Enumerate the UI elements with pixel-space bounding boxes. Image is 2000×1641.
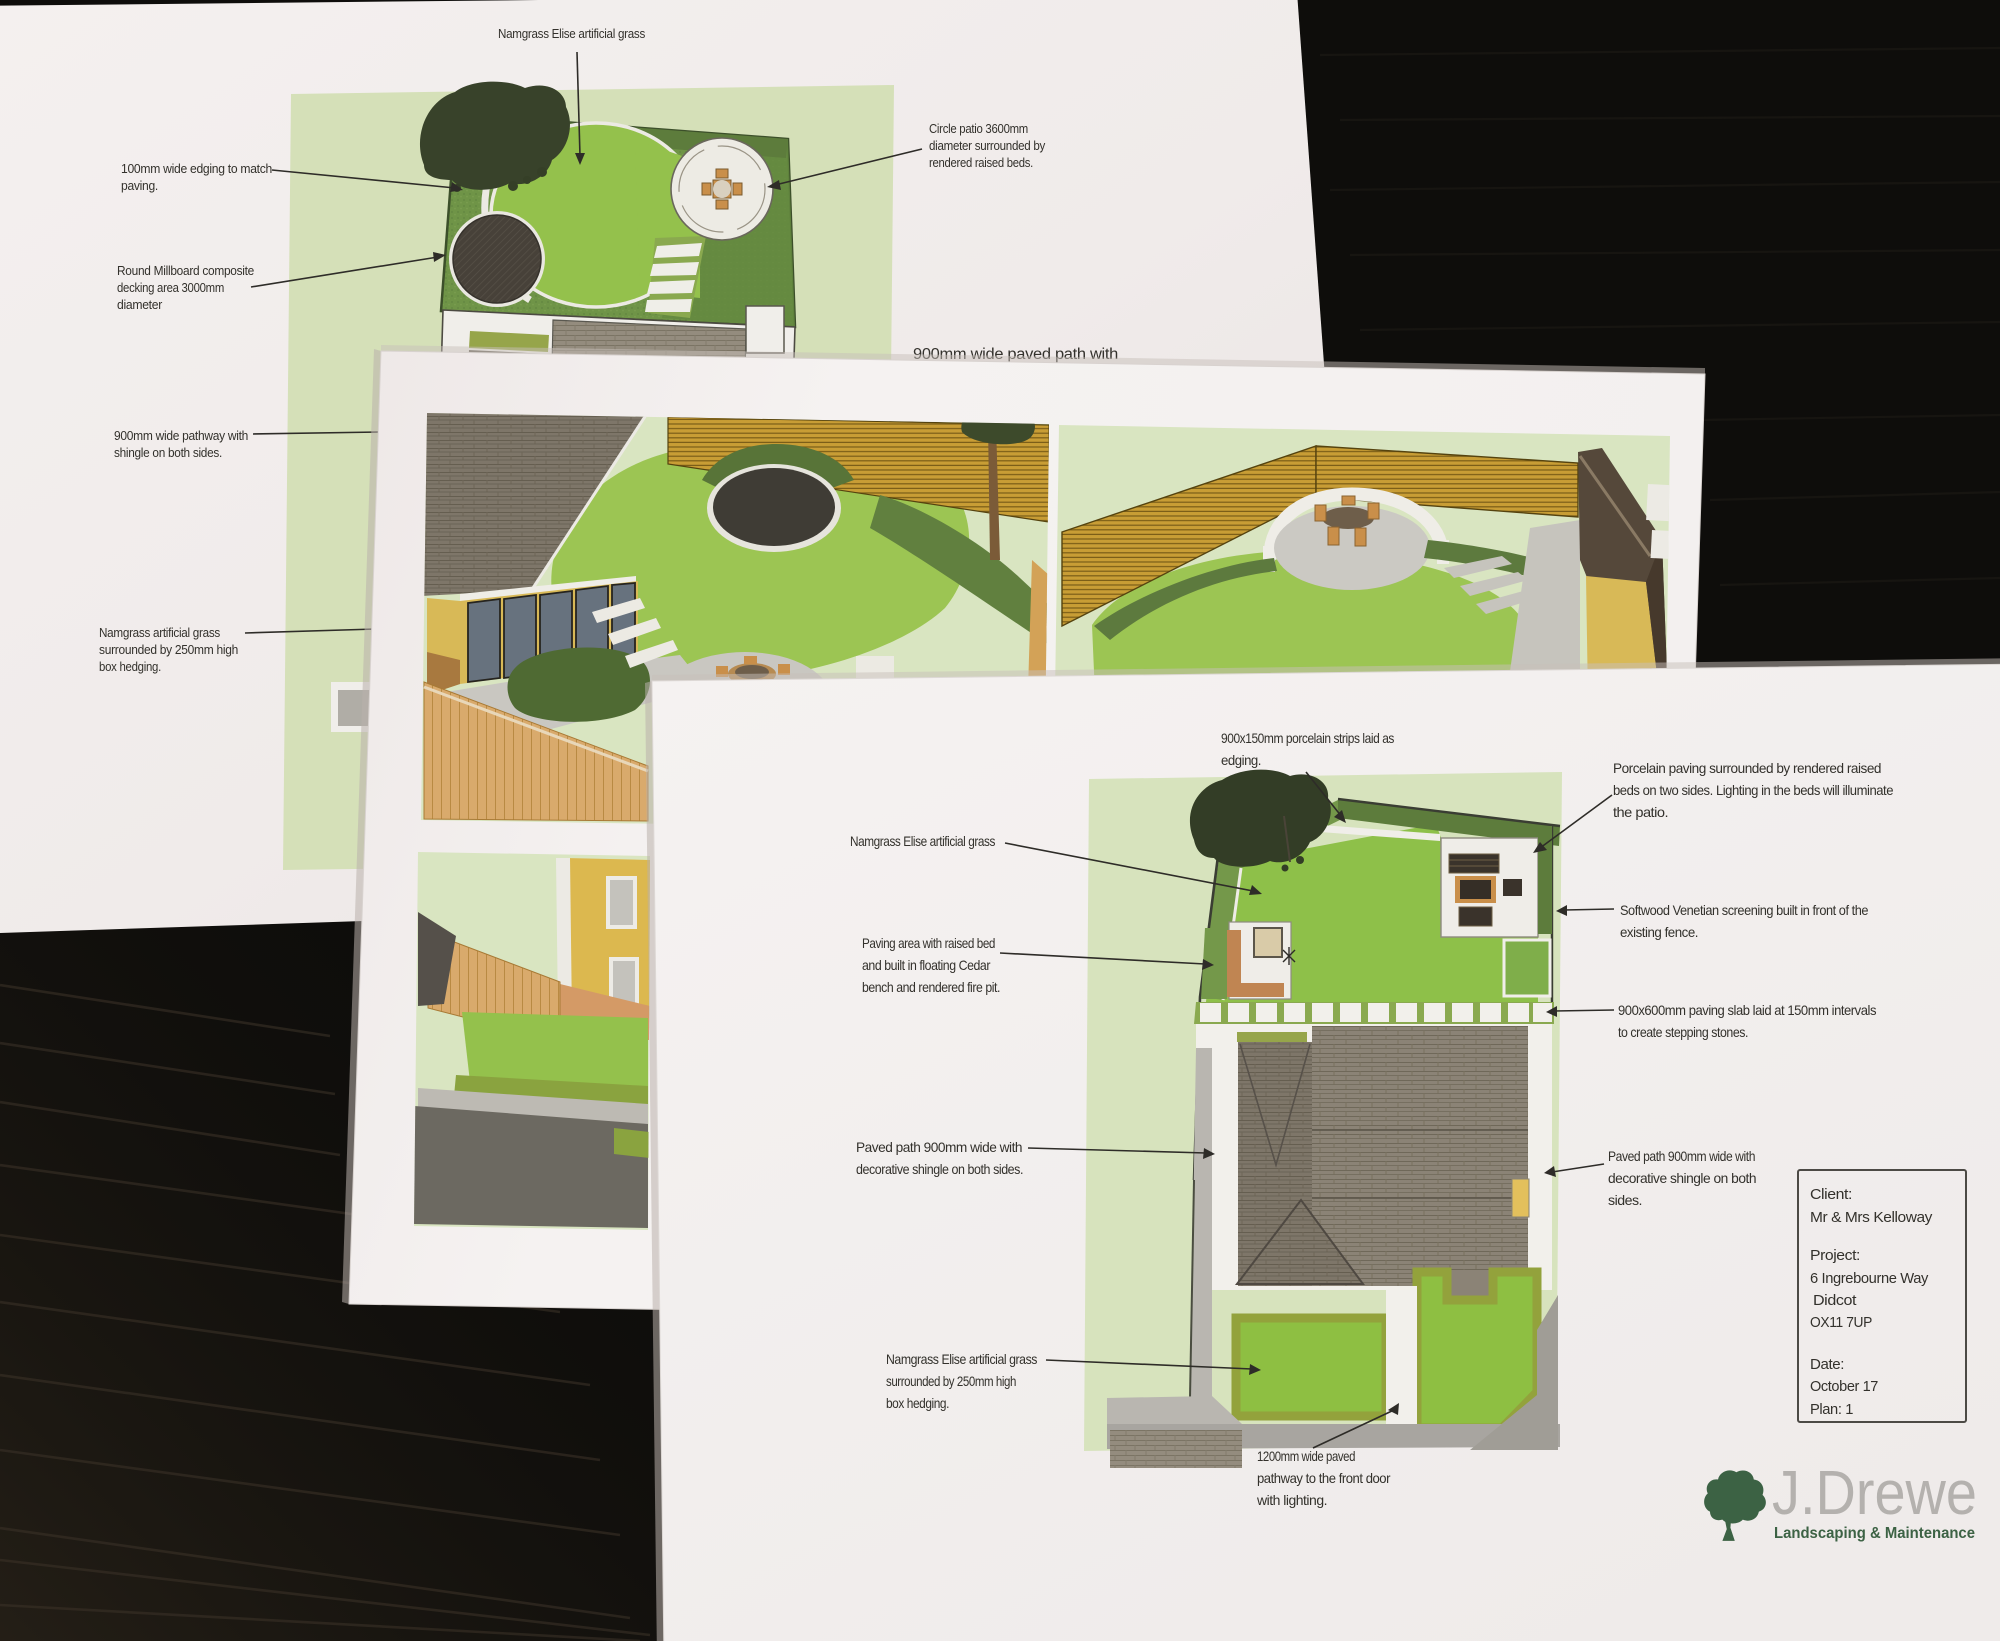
- svg-text:Date:: Date:: [1810, 1356, 1844, 1373]
- svg-text:Paved path 900mm wide with: Paved path 900mm wide with: [1608, 1148, 1755, 1164]
- svg-text:100mm wide edging to match: 100mm wide edging to match: [121, 162, 272, 176]
- svg-text:box hedging.: box hedging.: [886, 1395, 949, 1411]
- svg-text:pathway to the front door: pathway to the front door: [1257, 1470, 1391, 1486]
- svg-text:J.Drewe: J.Drewe: [1772, 1459, 1977, 1528]
- svg-text:Round Millboard composite: Round Millboard composite: [117, 264, 254, 278]
- svg-text:beds on two sides. Lighting in: beds on two sides. Lighting in the beds …: [1613, 782, 1894, 798]
- svg-text:decorative shingle on both sid: decorative shingle on both sides.: [856, 1161, 1023, 1177]
- svg-text:OX11 7UP: OX11 7UP: [1810, 1314, 1872, 1331]
- svg-text:October 17: October 17: [1810, 1378, 1878, 1395]
- svg-text:Paving area with raised bed: Paving area with raised bed: [862, 935, 995, 951]
- svg-text:Landscaping & Maintenance: Landscaping & Maintenance: [1774, 1525, 1975, 1542]
- svg-text:Namgrass Elise artificial gras: Namgrass Elise artificial grass: [886, 1351, 1037, 1367]
- svg-text:Softwood Venetian screening bu: Softwood Venetian screening built in fro…: [1620, 902, 1869, 918]
- svg-text:box hedging.: box hedging.: [99, 660, 161, 674]
- svg-text:Didcot: Didcot: [1813, 1292, 1857, 1309]
- svg-text:paving.: paving.: [121, 179, 158, 193]
- svg-text:surrounded by 250mm high: surrounded by 250mm high: [99, 643, 238, 657]
- svg-text:diameter surrounded by: diameter surrounded by: [929, 139, 1046, 153]
- svg-text:Plan: 1: Plan: 1: [1810, 1401, 1853, 1418]
- svg-text:Namgrass artificial grass: Namgrass artificial grass: [99, 626, 220, 640]
- svg-text:decorative shingle on both: decorative shingle on both: [1608, 1170, 1756, 1186]
- svg-text:Namgrass Elise artificial gras: Namgrass Elise artificial grass: [498, 27, 645, 41]
- svg-text:Porcelain paving surrounded by: Porcelain paving surrounded by rendered …: [1613, 760, 1881, 776]
- svg-text:decking area 3000mm: decking area 3000mm: [117, 281, 224, 295]
- svg-text:and built in floating Cedar: and built in floating Cedar: [862, 957, 991, 973]
- svg-text:6 Ingrebourne Way: 6 Ingrebourne Way: [1810, 1270, 1929, 1287]
- svg-text:Mr & Mrs Kelloway: Mr & Mrs Kelloway: [1810, 1209, 1933, 1226]
- svg-text:to create stepping stones.: to create stepping stones.: [1618, 1024, 1748, 1040]
- svg-text:900x150mm porcelain strips lai: 900x150mm porcelain strips laid as: [1221, 730, 1394, 746]
- svg-text:sides.: sides.: [1608, 1192, 1642, 1208]
- svg-text:rendered raised beds.: rendered raised beds.: [929, 156, 1033, 170]
- svg-text:surrounded by 250mm high: surrounded by 250mm high: [886, 1373, 1016, 1389]
- svg-text:diameter: diameter: [117, 298, 162, 312]
- svg-text:Client:: Client:: [1810, 1186, 1852, 1203]
- svg-text:900mm wide pathway with: 900mm wide pathway with: [114, 429, 248, 443]
- svg-text:with lighting.: with lighting.: [1256, 1492, 1327, 1508]
- svg-text:Paved path 900mm wide with: Paved path 900mm wide with: [856, 1139, 1022, 1155]
- svg-text:edging.: edging.: [1221, 752, 1261, 768]
- svg-text:bench and rendered fire pit.: bench and rendered fire pit.: [862, 979, 1000, 995]
- svg-text:the patio.: the patio.: [1613, 804, 1668, 820]
- svg-text:Circle patio 3600mm: Circle patio 3600mm: [929, 122, 1028, 136]
- svg-text:Project:: Project:: [1810, 1247, 1860, 1264]
- svg-text:shingle on both sides.: shingle on both sides.: [114, 446, 222, 460]
- svg-text:Namgrass Elise artificial gras: Namgrass Elise artificial grass: [850, 833, 995, 849]
- svg-text:existing fence.: existing fence.: [1620, 924, 1698, 940]
- svg-text:900x600mm paving slab laid at: 900x600mm paving slab laid at 150mm inte…: [1618, 1002, 1876, 1018]
- svg-text:1200mm wide paved: 1200mm wide paved: [1257, 1448, 1355, 1464]
